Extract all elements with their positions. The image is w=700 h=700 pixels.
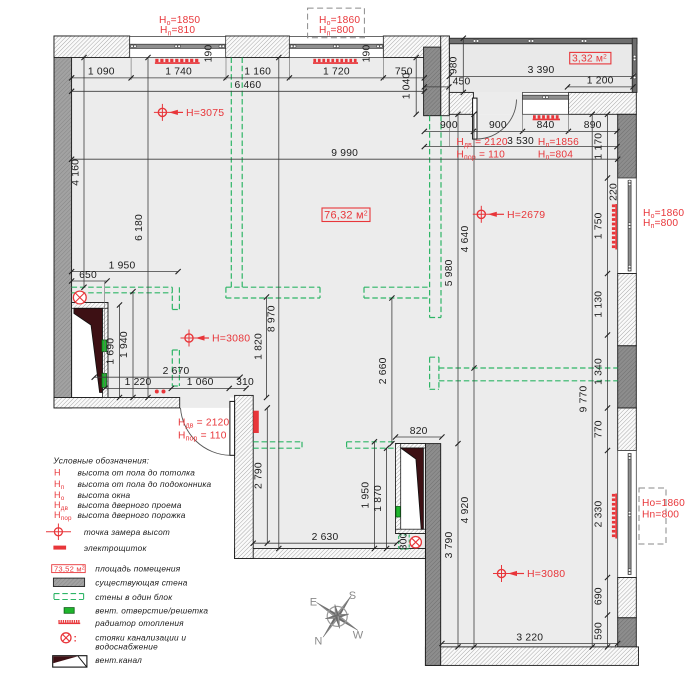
svg-text:высота от пола до подоконника: высота от пола до подоконника <box>78 479 212 489</box>
svg-text:Hпор = 110: Hпор = 110 <box>178 431 227 443</box>
svg-text:N: N <box>314 636 322 648</box>
svg-text:стены в один блок: стены в один блок <box>95 592 173 602</box>
svg-text:электрощиток: электрощиток <box>84 543 148 553</box>
svg-text:820: 820 <box>410 426 428 437</box>
svg-text:900: 900 <box>440 120 458 131</box>
svg-text:900: 900 <box>489 120 507 131</box>
svg-text:1 130: 1 130 <box>594 291 605 318</box>
svg-text:5 980: 5 980 <box>444 259 455 286</box>
svg-text:1 200: 1 200 <box>587 76 614 87</box>
svg-text:6 460: 6 460 <box>235 80 262 91</box>
svg-text:2 330: 2 330 <box>594 501 605 528</box>
svg-text:9 990: 9 990 <box>331 148 358 159</box>
svg-text:8 970: 8 970 <box>267 305 278 332</box>
svg-text:2 790: 2 790 <box>254 462 265 489</box>
svg-text::: : <box>74 634 78 645</box>
svg-text:1 740: 1 740 <box>165 67 192 78</box>
svg-text:590: 590 <box>594 622 605 640</box>
svg-text:840: 840 <box>537 120 555 131</box>
svg-text:H=2679: H=2679 <box>507 209 545 221</box>
svg-text:980: 980 <box>449 56 460 74</box>
svg-text:Hп=800: Hп=800 <box>643 218 678 230</box>
svg-text:водоснабжение: водоснабжение <box>95 642 158 652</box>
svg-text:2 630: 2 630 <box>312 532 339 543</box>
svg-text:9 770: 9 770 <box>578 386 589 413</box>
svg-text:73,52 м2: 73,52 м2 <box>54 565 85 574</box>
svg-text:высота дверного порожка: высота дверного порожка <box>78 510 186 520</box>
svg-text:76,32 м2: 76,32 м2 <box>324 210 368 222</box>
svg-text:770: 770 <box>594 420 605 438</box>
svg-text:450: 450 <box>453 77 471 88</box>
svg-text:3 220: 3 220 <box>516 632 543 643</box>
svg-text:Hп=804: Hп=804 <box>538 150 573 162</box>
svg-text:Hп=1856: Hп=1856 <box>538 137 579 149</box>
svg-text:1 820: 1 820 <box>254 333 265 360</box>
svg-text:Ho=1860: Ho=1860 <box>642 498 685 509</box>
svg-text:H=3075: H=3075 <box>186 107 224 119</box>
svg-text:890: 890 <box>584 120 602 131</box>
svg-text:радиатор отопления: радиатор отопления <box>94 618 184 628</box>
svg-text:310: 310 <box>236 377 254 388</box>
svg-text:2 660: 2 660 <box>378 357 389 384</box>
svg-text:существующая стена: существующая стена <box>95 578 187 588</box>
svg-text:высота окна: высота окна <box>78 490 131 500</box>
svg-text:Hп=810: Hп=810 <box>160 25 195 37</box>
svg-text:1 160: 1 160 <box>244 67 271 78</box>
svg-text:4 160: 4 160 <box>71 159 82 186</box>
svg-text:H=3080: H=3080 <box>212 333 250 345</box>
svg-text:3 390: 3 390 <box>528 65 555 76</box>
svg-text:190: 190 <box>204 45 215 63</box>
svg-text:1 950: 1 950 <box>109 260 136 271</box>
svg-text:Условные обозначения:: Условные обозначения: <box>52 456 149 466</box>
svg-text:2 670: 2 670 <box>163 366 190 377</box>
svg-text:3,32 м2: 3,32 м2 <box>572 54 607 65</box>
svg-text:Hn=800: Hn=800 <box>642 510 679 521</box>
svg-text:1 040: 1 040 <box>402 72 413 99</box>
svg-text:1 090: 1 090 <box>88 67 115 78</box>
svg-text:1 690: 1 690 <box>106 338 117 365</box>
svg-text:1 720: 1 720 <box>323 67 350 78</box>
svg-text:190: 190 <box>362 45 373 63</box>
svg-text:точка замера высот: точка замера высот <box>84 527 170 537</box>
svg-text:H: H <box>54 468 61 478</box>
svg-text:1 750: 1 750 <box>594 212 605 239</box>
svg-text:высота от пола до потолка: высота от пола до потолка <box>78 468 196 478</box>
svg-text:220: 220 <box>609 183 620 201</box>
svg-text:650: 650 <box>79 270 97 281</box>
svg-text:площадь помещения: площадь помещения <box>95 564 180 574</box>
svg-text:1 170: 1 170 <box>594 133 605 160</box>
svg-text:1 940: 1 940 <box>119 331 130 358</box>
svg-text:1 060: 1 060 <box>187 377 214 388</box>
svg-text:6 180: 6 180 <box>134 214 145 241</box>
svg-text:S: S <box>349 590 357 602</box>
svg-text:300: 300 <box>399 532 410 550</box>
svg-text:1 950: 1 950 <box>361 482 372 509</box>
svg-text:E: E <box>310 597 318 609</box>
svg-text:Hп=800: Hп=800 <box>319 25 354 37</box>
svg-text:высота дверного проема: высота дверного проема <box>78 500 182 510</box>
svg-text:вент. отверстие/решетка: вент. отверстие/решетка <box>95 606 208 616</box>
svg-text:3 530: 3 530 <box>507 136 534 147</box>
svg-text:вент.канал: вент.канал <box>95 655 142 665</box>
svg-text:3 790: 3 790 <box>444 532 455 559</box>
svg-text:1 870: 1 870 <box>373 485 384 512</box>
svg-text:4 640: 4 640 <box>460 226 471 253</box>
svg-text:1 340: 1 340 <box>594 358 605 385</box>
svg-text:4 920: 4 920 <box>460 497 471 524</box>
svg-text:690: 690 <box>594 587 605 605</box>
svg-text:H=3080: H=3080 <box>527 568 565 580</box>
svg-text:1 220: 1 220 <box>125 377 152 388</box>
svg-text:W: W <box>353 630 364 642</box>
svg-text:Hпор = 110: Hпор = 110 <box>456 150 505 162</box>
